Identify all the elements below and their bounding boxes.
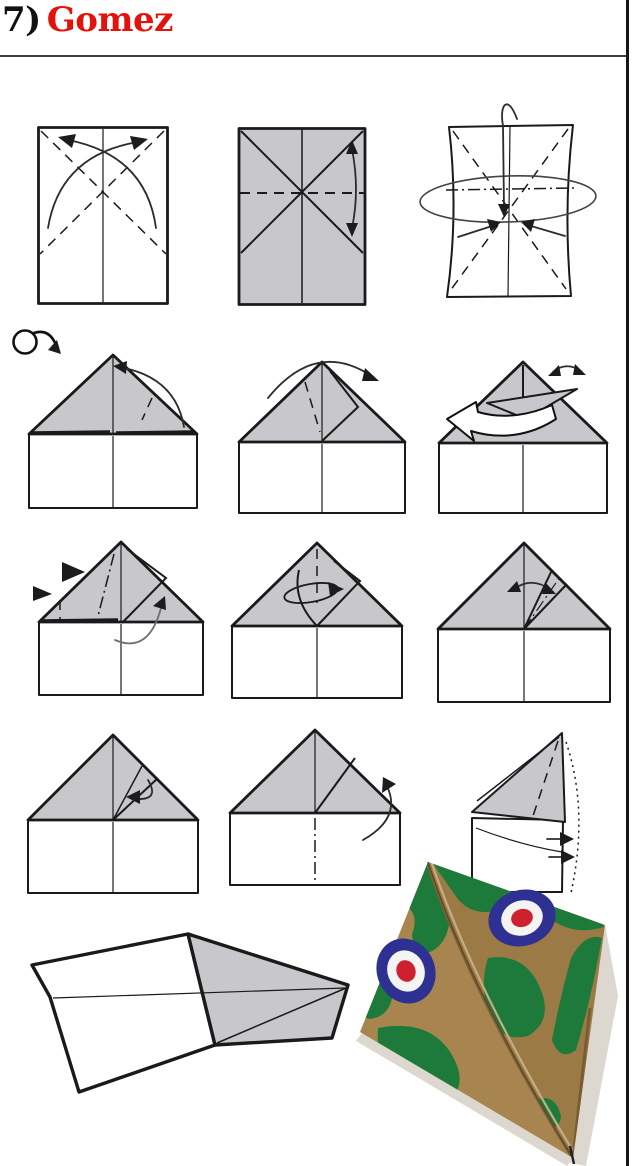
wiggle-arrow-icon [548, 364, 586, 376]
nose [188, 934, 348, 1045]
step-1-diagram [39, 128, 168, 304]
step-12-diagram [472, 733, 579, 893]
folding-diagram-board [0, 0, 640, 1166]
paper-nose [472, 733, 565, 822]
step-8-diagram [232, 543, 402, 698]
paper-body [472, 818, 563, 892]
turn-over-icon [14, 331, 62, 355]
wing [32, 934, 215, 1092]
instructions-page: 7)Gomez [0, 0, 640, 1166]
step-4-diagram [29, 355, 197, 508]
step-10-diagram [28, 735, 198, 893]
step-5-diagram [239, 362, 405, 513]
finished-plane-outline [32, 934, 348, 1092]
wing-drop-guide-line [566, 742, 579, 893]
step-3-diagram [419, 104, 596, 297]
step-9-diagram [438, 543, 610, 702]
step-11-diagram [230, 730, 400, 885]
mountain-fold-arrowhead-icon [33, 586, 52, 601]
finished-plane-camouflage [353, 860, 618, 1166]
step-2-diagram [239, 129, 365, 305]
step-6-diagram [439, 362, 607, 513]
step-7-diagram [33, 542, 203, 695]
